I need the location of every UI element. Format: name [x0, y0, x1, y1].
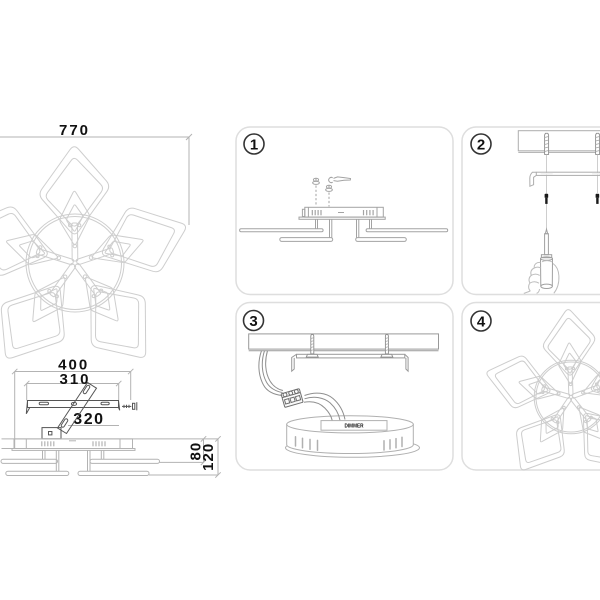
svg-text:4: 4: [477, 314, 486, 331]
svg-text:120: 120: [200, 443, 217, 471]
svg-text:770: 770: [59, 122, 90, 139]
svg-text:DIMMER: DIMMER: [345, 424, 364, 430]
svg-text:1: 1: [250, 137, 258, 154]
svg-text:2: 2: [477, 137, 485, 154]
svg-text:3: 3: [249, 313, 257, 330]
